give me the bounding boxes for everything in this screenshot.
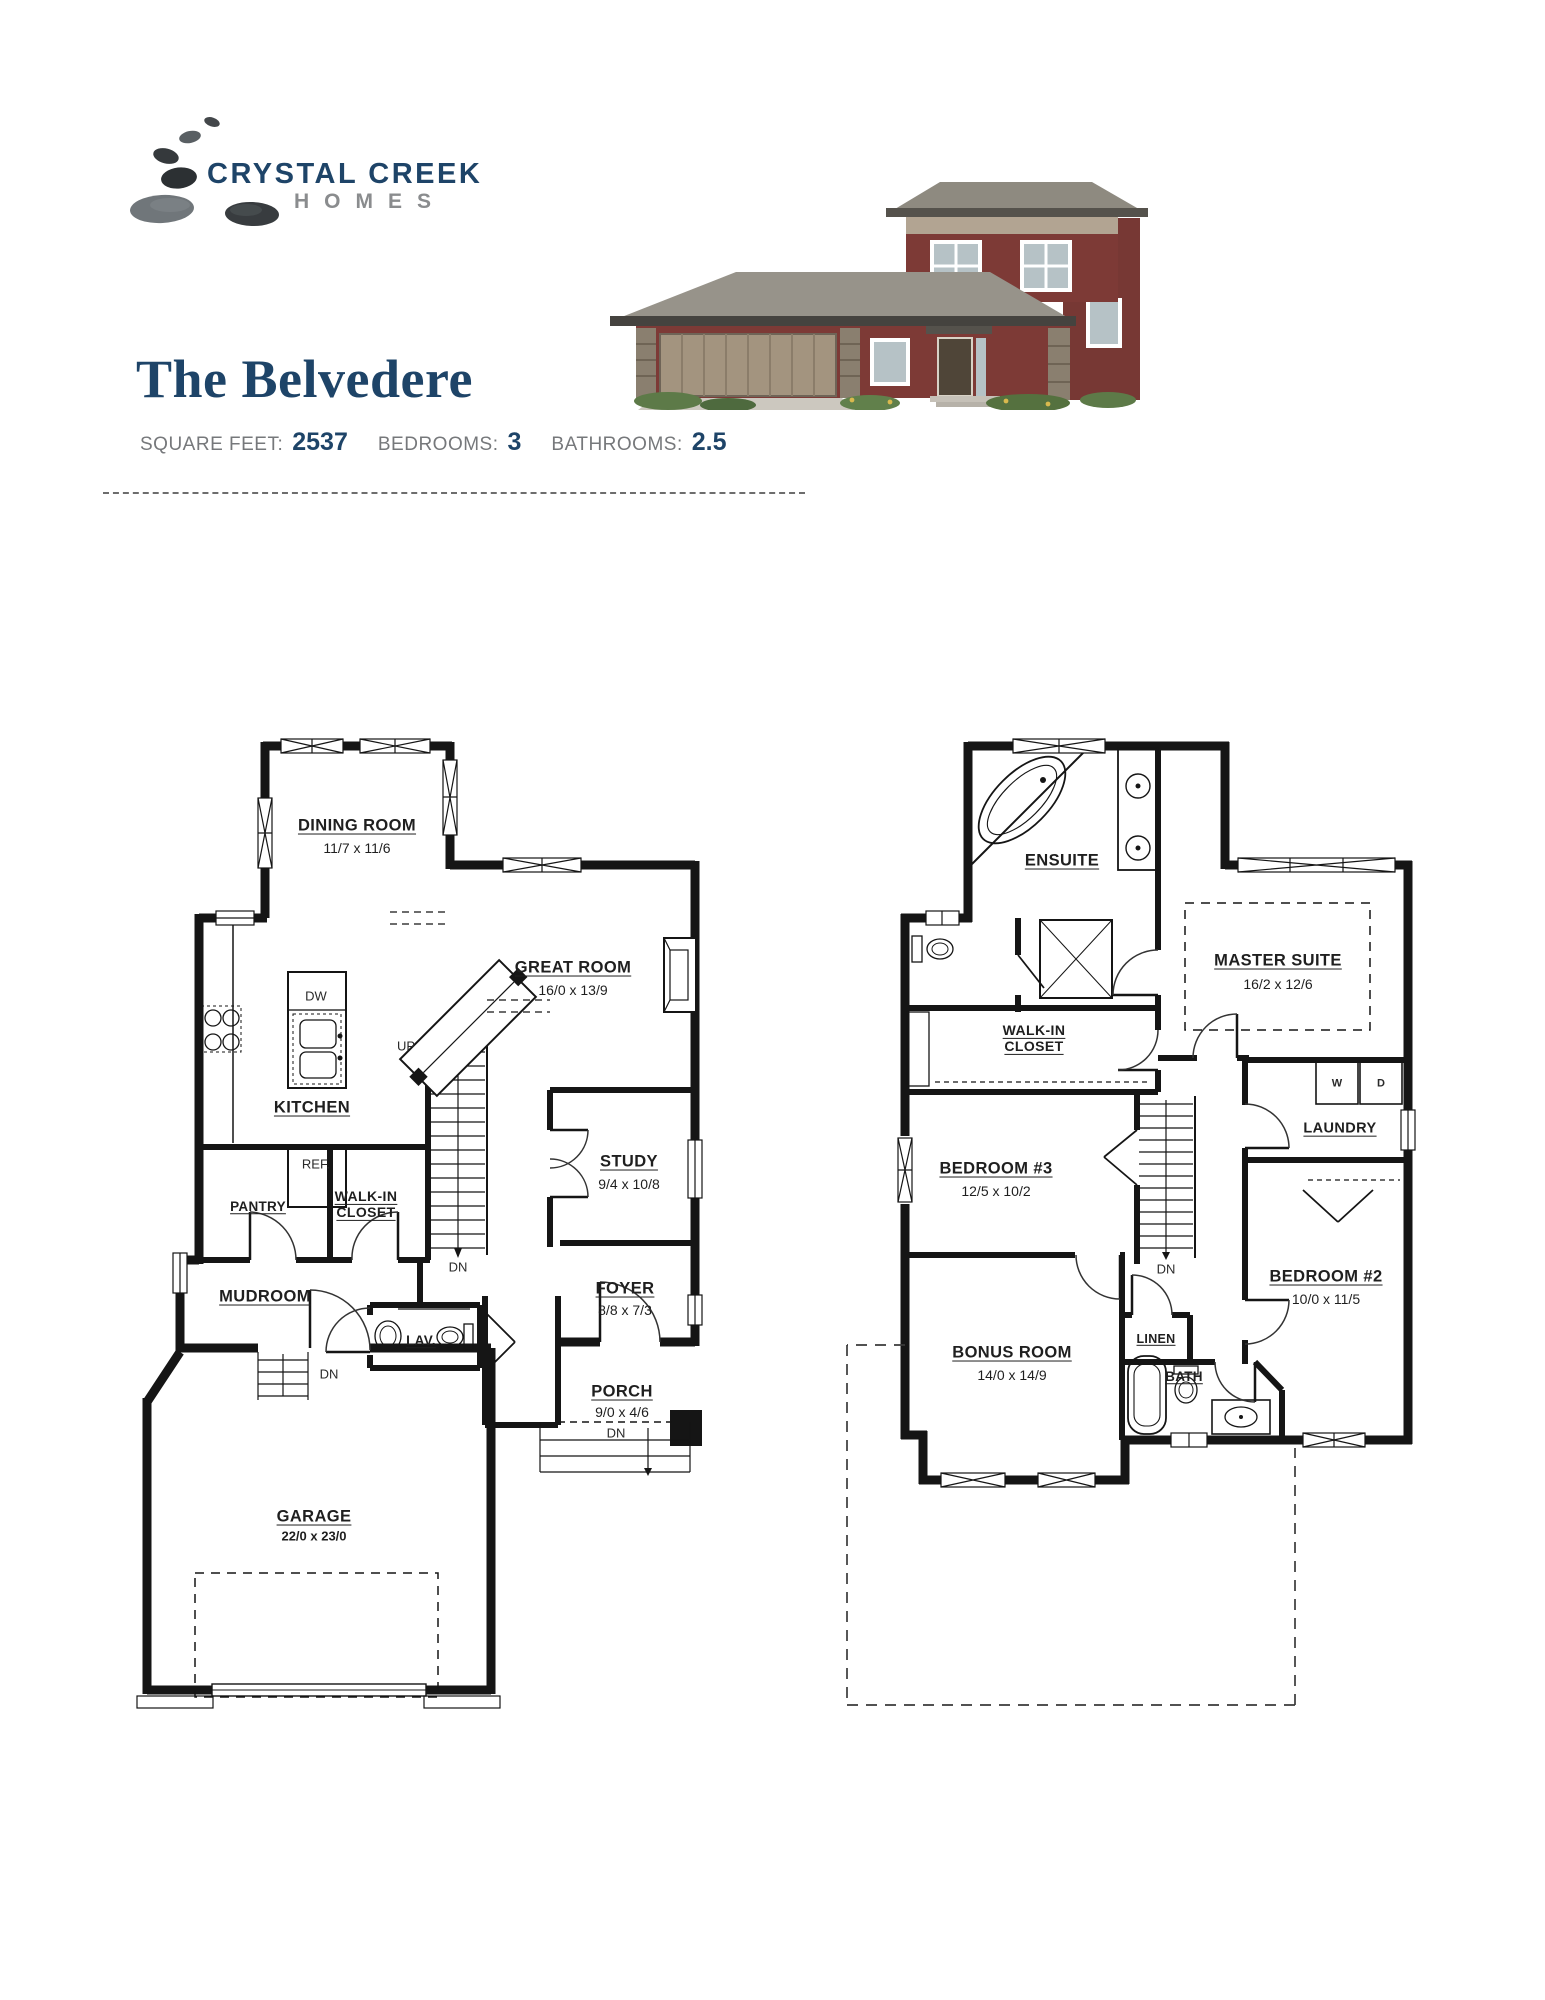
bath-fixtures bbox=[1128, 1356, 1270, 1434]
room-dims-dining: 11/7 x 11/6 bbox=[323, 840, 390, 856]
room-label-mudroom: MUDROOM bbox=[219, 1288, 311, 1307]
closet-shelf bbox=[907, 1012, 929, 1086]
spec-square-feet: SQUARE FEET: 2537 bbox=[140, 428, 348, 457]
mark-stairs-dn-garage: DN bbox=[320, 1368, 339, 1383]
room-label-foyer: FOYER bbox=[596, 1280, 655, 1299]
spec-list: SQUARE FEET: 2537 BEDROOMS: 3 BATHROOMS:… bbox=[140, 428, 727, 457]
brand-sub-name: HOMES bbox=[294, 190, 446, 214]
room-dims-bedroom-3: 12/5 x 10/2 bbox=[961, 1183, 1030, 1199]
mark-dishwasher: DW bbox=[305, 990, 327, 1005]
room-dims-bedroom-2: 10/0 x 11/5 bbox=[1292, 1291, 1360, 1307]
room-dims-great-room: 16/0 x 13/9 bbox=[538, 982, 607, 998]
cooktop bbox=[201, 1006, 241, 1052]
room-label-porch: PORCH bbox=[591, 1383, 653, 1402]
mark-stairs-dn-upper: DN bbox=[1157, 1263, 1176, 1278]
room-label-ensuite: ENSUITE bbox=[1025, 852, 1099, 871]
floor-plan-main bbox=[137, 739, 702, 1708]
room-label-lav: LAV. bbox=[406, 1333, 436, 1349]
stairs-upper bbox=[1139, 1096, 1195, 1260]
brand-name: CRYSTAL CREEK bbox=[207, 158, 482, 191]
house-rendering bbox=[608, 148, 1160, 410]
ensuite-vanity bbox=[1118, 748, 1158, 870]
room-label-bonus-room: BONUS ROOM bbox=[952, 1344, 1072, 1363]
mark-stairs-dn-porch: DN bbox=[607, 1427, 626, 1442]
mark-stairs-dn-basement: DN bbox=[449, 1261, 468, 1276]
mark-washer: W bbox=[1332, 1078, 1342, 1091]
spec-bedrooms: BEDROOMS: 3 bbox=[378, 428, 522, 457]
room-label-bedroom-2: BEDROOM #2 bbox=[1269, 1268, 1382, 1287]
room-label-great-room: GREAT ROOM bbox=[515, 959, 631, 978]
room-label-laundry: LAUNDRY bbox=[1303, 1121, 1376, 1138]
room-label-study: STUDY bbox=[600, 1153, 658, 1172]
spec-label: SQUARE FEET: bbox=[140, 434, 283, 456]
room-label-kitchen: KITCHEN bbox=[274, 1099, 350, 1118]
room-label-bedroom-3: BEDROOM #3 bbox=[939, 1160, 1052, 1179]
room-dims-master-suite: 16/2 x 12/6 bbox=[1243, 976, 1312, 992]
room-dims-foyer: 8/8 x 7/3 bbox=[598, 1302, 652, 1318]
room-label-garage: GARAGE bbox=[277, 1508, 352, 1527]
spec-bathrooms: BATHROOMS: 2.5 bbox=[551, 428, 726, 457]
mark-refrigerator: REF. bbox=[302, 1158, 330, 1173]
stairs-garage bbox=[258, 1352, 308, 1400]
spec-value: 3 bbox=[508, 428, 522, 457]
room-label-walkin-closet-upper: WALK-IN CLOSET bbox=[981, 1022, 1087, 1054]
mark-dryer: D bbox=[1377, 1078, 1385, 1091]
page-title: The Belvedere bbox=[136, 348, 473, 410]
room-label-master-suite: MASTER SUITE bbox=[1214, 952, 1342, 971]
fireplace bbox=[664, 938, 696, 1012]
room-dims-bonus-room: 14/0 x 14/9 bbox=[977, 1367, 1046, 1383]
floor-plan-second bbox=[847, 739, 1415, 1705]
spec-label: BEDROOMS: bbox=[378, 434, 499, 456]
spec-value: 2.5 bbox=[692, 428, 727, 457]
floor-plans-drawing bbox=[0, 730, 1545, 1720]
corner-bathtub bbox=[964, 742, 1090, 868]
room-label-linen: LINEN bbox=[1137, 1332, 1176, 1346]
garage-door bbox=[660, 334, 836, 396]
water-closet-toilet bbox=[912, 936, 953, 962]
main-storey bbox=[636, 326, 1070, 407]
room-dims-study: 9/4 x 10/8 bbox=[598, 1176, 660, 1192]
room-label-pantry: PANTRY bbox=[230, 1199, 286, 1215]
mark-stairs-up: UP bbox=[397, 1040, 415, 1055]
room-dims-garage: 22/0 x 23/0 bbox=[281, 1530, 346, 1545]
garage-parking-outline bbox=[195, 1573, 438, 1697]
entry-door bbox=[938, 338, 986, 396]
spec-label: BATHROOMS: bbox=[551, 434, 682, 456]
room-dims-porch: 9/0 x 4/6 bbox=[595, 1404, 649, 1420]
washer-dryer bbox=[1316, 1062, 1402, 1104]
brochure-page: CRYSTAL CREEK HOMES bbox=[0, 0, 1545, 2000]
dashed-divider bbox=[103, 492, 805, 494]
room-label-bath: BATH bbox=[1165, 1369, 1203, 1385]
room-label-dining: DINING ROOM bbox=[298, 817, 416, 836]
room-label-walkin-closet-main: WALK-IN CLOSET bbox=[313, 1188, 419, 1220]
upper-roof bbox=[890, 182, 1144, 212]
shower bbox=[1040, 920, 1112, 998]
floor-below-outline bbox=[847, 1345, 1295, 1705]
spec-value: 2537 bbox=[292, 428, 348, 457]
